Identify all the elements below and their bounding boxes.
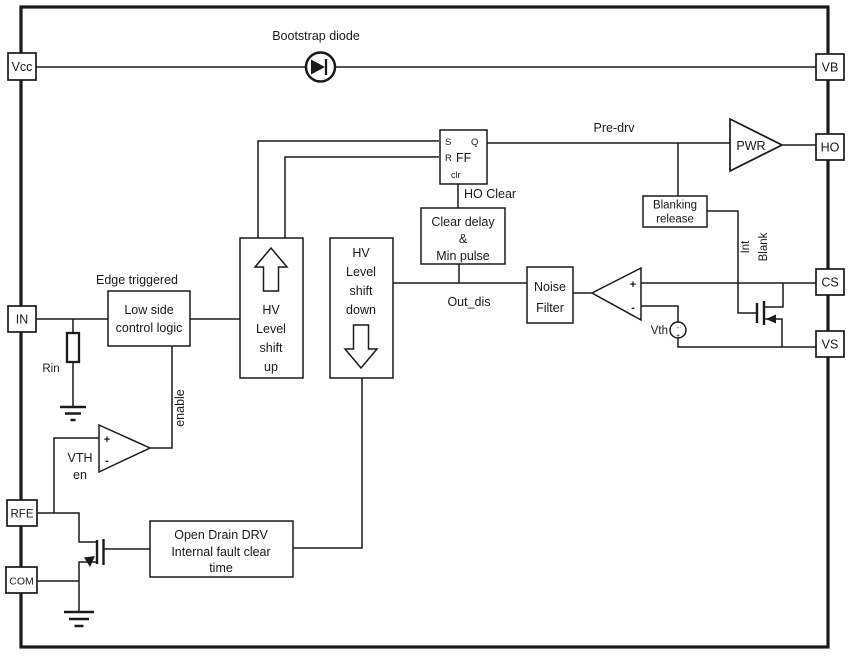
ground-rin-icon — [60, 407, 86, 420]
wire-comp-vth — [641, 306, 678, 322]
comp-minus-sign: - — [631, 302, 635, 314]
blanking-line2: release — [656, 214, 694, 226]
vth-src-plus: + — [676, 333, 680, 340]
pin-com-label: COM — [9, 576, 34, 588]
vth-en-plus-sign: + — [104, 434, 110, 446]
pin-vcc: Vcc — [8, 53, 36, 80]
pin-ho-label: HO — [821, 141, 840, 155]
pin-in-label: IN — [16, 313, 29, 327]
pin-ho: HO — [816, 134, 844, 160]
enable-label: enable — [173, 389, 187, 427]
vth-en-comparator: + - VTH en — [68, 425, 151, 482]
block-hv-shift-up: HV Level shift up — [240, 238, 303, 378]
noise-filter-line2: Filter — [536, 301, 564, 315]
block-clear-delay: Clear delay & Min pulse — [421, 208, 505, 264]
open-drain-line3: time — [209, 561, 233, 575]
wire-odrv-hvdown — [293, 378, 362, 548]
wire-fet-source — [765, 319, 782, 347]
open-drain-line2: Internal fault clear — [171, 545, 270, 559]
hv-down-line4: down — [346, 303, 376, 317]
pwr-label: PWR — [736, 139, 765, 153]
fault-mosfet-icon — [84, 539, 104, 567]
pin-cs: CS — [816, 269, 844, 295]
pre-drv-label: Pre-drv — [594, 121, 636, 135]
hv-up-line2: Level — [256, 322, 286, 336]
block-noise-filter: Noise Filter — [527, 267, 573, 323]
vth-en-minus-sign: - — [105, 455, 109, 467]
wire-enable — [150, 346, 172, 448]
int-label: Int — [740, 240, 752, 254]
pin-cs-label: CS — [821, 276, 838, 290]
cs-mosfet-icon — [757, 301, 776, 325]
clear-delay-line2: & — [459, 232, 468, 246]
diagram-canvas: Rin Bootstrap diode S Q R FF clr Pre-drv… — [0, 0, 850, 662]
pin-vs: VS — [816, 331, 844, 357]
rin-label: Rin — [42, 363, 59, 375]
vth-label: Vth — [651, 325, 668, 337]
clear-delay-line1: Clear delay — [431, 215, 495, 229]
hv-down-line2: Level — [346, 265, 376, 279]
ho-clear-label: HO Clear — [464, 187, 516, 201]
open-drain-line1: Open Drain DRV — [174, 528, 268, 542]
pin-vcc-label: Vcc — [12, 60, 33, 74]
pin-vs-label: VS — [822, 338, 839, 352]
comp-plus-sign: + — [630, 279, 636, 291]
vth-source-icon: - + — [670, 322, 686, 340]
wire-reset — [285, 157, 439, 238]
wire-blank-gate — [707, 211, 757, 313]
clear-delay-line3: Min pulse — [436, 249, 490, 263]
pin-com: COM — [6, 567, 37, 593]
pin-vb: VB — [816, 54, 844, 80]
vth-en-label1: VTH — [68, 451, 93, 465]
hv-up-line1: HV — [262, 303, 280, 317]
edge-triggered-label: Edge triggered — [96, 273, 178, 287]
hv-down-line1: HV — [352, 246, 370, 260]
pwr-driver: PWR — [730, 119, 782, 171]
ff-clr-label: clr — [451, 170, 461, 180]
block-low-side-logic: Low side control logic — [108, 291, 190, 346]
ff-name-label: FF — [456, 151, 472, 165]
blank-label: Blank — [758, 232, 770, 261]
cs-comparator: + - — [592, 268, 641, 320]
wire-src-gnd — [79, 562, 96, 612]
out-dis-label: Out_dis — [447, 295, 490, 309]
blanking-line1: Blanking — [653, 200, 697, 212]
vth-en-label2: en — [73, 468, 87, 482]
ff-s-label: S — [445, 137, 451, 148]
block-blanking-release: Blanking release — [643, 196, 707, 227]
bootstrap-diode-label: Bootstrap diode — [272, 29, 360, 43]
ff-r-label: R — [445, 153, 452, 164]
wire-vth-vs — [678, 338, 816, 347]
pin-rfe-label: RFE — [11, 509, 34, 521]
block-ff: S Q R FF clr — [440, 130, 487, 184]
block-hv-shift-down: HV Level shift down — [330, 238, 393, 378]
pin-vb-label: VB — [822, 61, 839, 75]
pin-in: IN — [8, 306, 36, 332]
block-open-drain-drv: Open Drain DRV Internal fault clear time — [150, 521, 293, 577]
wire-rfe-drain — [37, 513, 96, 542]
wire-fet-drain — [765, 283, 783, 307]
ground-com-icon — [64, 612, 94, 626]
low-side-line1: Low side — [124, 303, 173, 317]
hv-up-line3: shift — [260, 341, 283, 355]
low-side-line2: control logic — [116, 321, 183, 335]
hv-up-line4: up — [264, 360, 278, 374]
pin-rfe: RFE — [7, 500, 37, 526]
ff-q-label: Q — [471, 137, 478, 148]
noise-filter-line1: Noise — [534, 280, 566, 294]
resistor-rin — [67, 333, 79, 362]
hv-down-line3: shift — [350, 284, 373, 298]
bootstrap-diode-icon — [306, 53, 335, 82]
gate-driver-block-diagram: Rin Bootstrap diode S Q R FF clr Pre-drv… — [0, 0, 850, 662]
